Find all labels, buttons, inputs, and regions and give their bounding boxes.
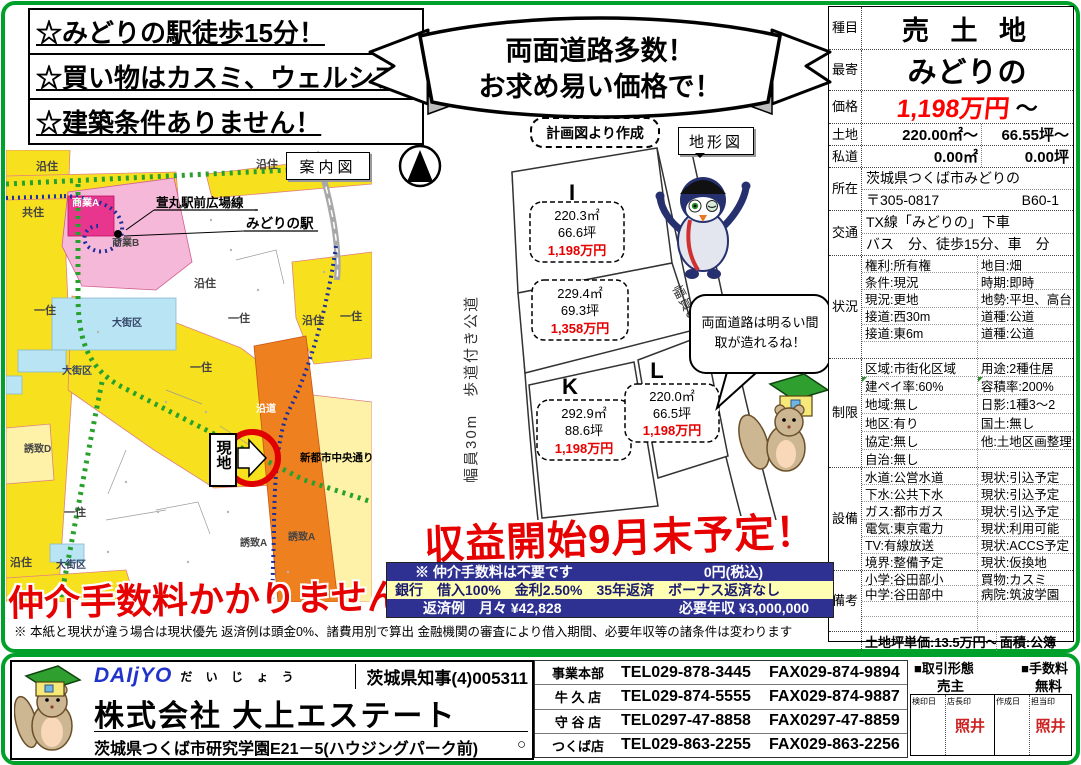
unit-price: 土地坪単価:13.5万円～	[862, 632, 997, 651]
svg-text:88.6坪: 88.6坪	[565, 423, 603, 438]
banner-line2: お求め易い価格で！	[479, 72, 722, 102]
loan-row-2: 銀行 借入100% 金利2.50% 35年返済 ボーナス返済なし	[387, 581, 833, 599]
road-30m-label: 幅員30m 歩道付き公道	[463, 295, 480, 483]
svg-text:両面道路は明るい間: 両面道路は明るい間	[701, 315, 818, 330]
ribbon-panel	[420, 18, 780, 117]
property-spec-table: 種目 売 土 地 最寄 みどりの 価格 1,198万円～ 土地 220.00㎡～…	[828, 6, 1074, 642]
svg-text:66.6坪: 66.6坪	[558, 225, 596, 240]
fee-value: 無料	[991, 675, 1072, 691]
terrain-map-label: 地形図	[678, 127, 754, 155]
price-value: 1,198万円	[895, 89, 1011, 125]
svg-text:69.3坪: 69.3坪	[561, 303, 599, 318]
svg-text:1,198万円: 1,198万円	[548, 243, 607, 258]
highlight-text: ☆建築条件ありません！	[36, 103, 321, 140]
main-road-label: 新都市中央通り	[300, 451, 372, 464]
status-rows: 権利:所有権地目:畑 条件:現況時期:即時 現況:更地地勢:平坦、高台 接道:西…	[862, 256, 1073, 358]
spec-label: 所在	[829, 168, 862, 210]
spec-label: 設備	[829, 468, 862, 570]
tsukuba-office-mark: ○	[517, 736, 526, 753]
company-logo: DAIjYO	[94, 664, 172, 688]
private-road-m2: 0.00㎡	[862, 146, 982, 167]
loan-row-3: 返済例 月々 ¥42,828 必要年収 ¥3,000,000	[387, 599, 833, 617]
svg-text:大街区: 大街区	[56, 558, 86, 571]
loan-terms: 銀行 借入100% 金利2.50% 35年返済 ボーナス返済なし	[387, 580, 780, 600]
station-dot	[114, 230, 122, 238]
land-area-tsubo: 66.55坪～	[982, 124, 1073, 145]
phone-row: 守 谷 店 TEL0297-47-8858 FAX0297-47-8859	[535, 710, 907, 734]
utility-rows: 水道:公営水道現状:引込予定 下水:公共下水現状:引込予定 ガス:都市ガス現状:…	[862, 468, 1073, 570]
svg-text:220.3㎡: 220.3㎡	[554, 208, 600, 223]
spec-label: 私道	[829, 146, 862, 167]
spec-label: 制限	[829, 359, 862, 467]
phone-row: 事業本部 TEL029-878-3445 FAX029-874-9894	[535, 661, 907, 685]
station-label: みどりの駅	[246, 216, 314, 231]
comment-marker	[862, 377, 867, 382]
comment-marker	[978, 377, 983, 382]
station-road-label: 萱丸駅前広場線	[156, 195, 244, 210]
loan-monthly: 返済例 月々 ¥42,828	[387, 598, 562, 618]
banner-line1: 両面道路多数！	[506, 35, 695, 66]
svg-text:一住: 一住	[64, 505, 86, 519]
svg-text:沿住: 沿住	[36, 159, 58, 173]
lot-plan: 幅員30m 歩道付き公道 幅員6m 公道 I J K L 220.3㎡ 66.6…	[372, 138, 830, 520]
compass-north-icon	[400, 146, 440, 186]
license-number: 茨城県知事(4)005311	[355, 664, 528, 689]
svg-text:1,198万円: 1,198万円	[555, 441, 614, 456]
deal-info-box: ■取引形態 ■手数料 売主 無料 検印日 店長印 照井 作成日 担当印 照井	[910, 658, 1072, 756]
company-logo-kana: だ い じ ょ う	[180, 668, 298, 685]
guide-map-label: 案内図	[286, 152, 370, 180]
guide-map: 萱丸駅前広場線 みどりの駅 沿住 沿住 共住 商業A 商業B 大街区 沿住 一住…	[6, 150, 372, 602]
no-commission-notice: 仲介手数料かかりません！	[8, 567, 440, 627]
svg-text:誘致A: 誘致A	[240, 536, 267, 549]
svg-text:沿道: 沿道	[256, 402, 276, 415]
loan-example-table: ※ 仲介手数料は不要です 0円(税込) 銀行 借入100% 金利2.50% 35…	[386, 562, 834, 618]
svg-text:292.9㎡: 292.9㎡	[561, 406, 607, 421]
loan-note: ※ 仲介手数料は不要です	[387, 562, 573, 582]
company-header-row: DAIjYO だ い じ ょ う 茨城県知事(4)005311	[94, 662, 528, 690]
spec-label: 交通	[829, 211, 862, 255]
deal-type-value: 売主	[910, 675, 991, 691]
phone-table: 事業本部 TEL029-878-3445 FAX029-874-9894 牛 久…	[534, 660, 908, 758]
svg-text:1,358万円: 1,358万円	[551, 321, 610, 336]
svg-text:大街区: 大街区	[112, 316, 142, 329]
price-tilde: ～	[1016, 91, 1038, 123]
property-type: 売 土 地	[862, 7, 1073, 49]
ribbon-banner: 両面道路多数！ お求め易い価格で！	[364, 8, 836, 122]
svg-text:一住: 一住	[34, 303, 56, 317]
svg-text:沿住: 沿住	[302, 313, 324, 327]
svg-text:沿住: 沿住	[256, 157, 278, 171]
spec-label: 土地	[829, 124, 862, 145]
land-area-m2: 220.00㎡～	[862, 124, 982, 145]
phone-row: つくば店 TEL029-863-2255 FAX029-863-2256	[535, 734, 907, 757]
svg-text:K: K	[562, 374, 578, 399]
nearest-station: みどりの	[862, 50, 1073, 90]
spec-label	[829, 632, 862, 651]
deal-type-label: ■取引形態	[914, 658, 974, 675]
svg-text:一住: 一住	[340, 309, 362, 323]
address-line: 茨城県つくば市みどりの	[862, 168, 1073, 189]
area-basis: 面積:公簿	[997, 632, 1073, 651]
fee-label: ■手数料	[1021, 658, 1068, 675]
loan-income: 必要年収 ¥3,000,000	[679, 598, 833, 618]
svg-text:220.0㎡: 220.0㎡	[649, 389, 695, 404]
svg-text:一住: 一住	[228, 311, 250, 325]
loan-row-1: ※ 仲介手数料は不要です 0円(税込)	[387, 563, 833, 581]
svg-text:66.5坪: 66.5坪	[653, 406, 691, 421]
company-address: 茨城県つくば市研究学園E21－5(ハウジングパーク前)	[94, 731, 528, 759]
stamp-table: 検印日 店長印 照井 作成日 担当印 照井	[910, 694, 1072, 756]
manager-stamp: 照井	[946, 715, 994, 736]
svg-text:商業B: 商業B	[112, 236, 139, 249]
svg-text:一住: 一住	[190, 360, 212, 374]
svg-text:沿住: 沿住	[194, 276, 216, 290]
svg-text:大街区: 大街区	[62, 364, 92, 377]
company-squirrel-logo-icon	[14, 664, 88, 754]
svg-text:L: L	[650, 358, 663, 383]
svg-text:共住: 共住	[22, 205, 44, 219]
svg-text:1,198万円: 1,198万円	[643, 423, 702, 438]
phone-row: 牛 久 店 TEL029-874-5555 FAX029-874-9887	[535, 685, 907, 709]
zip-code: 〒305-0817	[866, 190, 939, 210]
squirrel-mascot-icon	[733, 374, 828, 473]
highlight-text: ☆みどりの駅徒歩15分！	[36, 13, 325, 50]
transit-line2: バス 分、徒歩15分、車 分	[862, 233, 1073, 256]
remarks-rows: 小学:谷田部小買物:カスミ 中学:谷田部中病院:筑波学園	[862, 571, 1073, 631]
svg-text:取が造れるね！: 取が造れるね！	[714, 335, 805, 350]
svg-text:誘致D: 誘致D	[24, 442, 51, 455]
svg-text:誘致A: 誘致A	[288, 530, 315, 543]
company-name: 株式会社 大上エステート	[94, 691, 456, 735]
svg-text:229.4㎡: 229.4㎡	[557, 286, 603, 301]
restriction-rows: 区域:市街化区域用途:2種住居 建ペイ率:60%容積率:200% 地域:無し日影…	[862, 359, 1073, 467]
flyer-page: ☆みどりの駅徒歩15分！ ☆買い物はカスミ、ウェルシア！ ☆建築条件ありません！…	[0, 0, 1081, 765]
svg-text:沿住: 沿住	[10, 555, 32, 569]
svg-text:商業A: 商業A	[72, 196, 99, 209]
site-label: 現地	[215, 440, 232, 470]
private-road-tsubo: 0.00坪	[982, 146, 1073, 167]
staff-stamp: 照井	[1030, 715, 1071, 736]
spec-label: 状況	[829, 256, 862, 358]
plan-note-label: 計画図より作成	[530, 117, 660, 148]
lot-code: B60-1	[1022, 192, 1059, 208]
loan-fee: 0円(税込)	[704, 562, 833, 582]
transit-line1: TX線「みどりの」下車	[862, 211, 1073, 233]
